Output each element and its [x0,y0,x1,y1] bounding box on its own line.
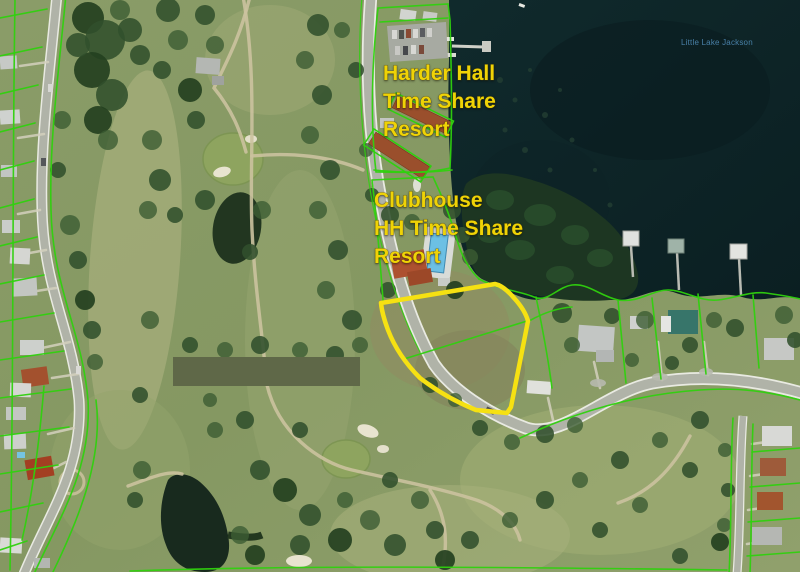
clubhouse-label-line3: Resort [374,245,441,268]
parking-lot [387,22,448,62]
resort-label-line2: Time Share [383,90,496,113]
pool [17,452,25,458]
spur-street [737,416,743,572]
boathouse [623,231,639,246]
aerial-map: Harder Hall Time Share Resort Clubhouse … [0,0,800,572]
clubhouse-label-line2: HH Time Share [374,217,523,240]
pier [452,46,484,47]
resort-label-line3: Resort [383,118,450,141]
dock-head [482,41,491,52]
teal-roof-house [668,310,698,334]
boathouse [730,244,747,259]
clubhouse-label-line1: Clubhouse [374,189,483,212]
aerial-map-screenshot: Harder Hall Time Share Resort Clubhouse … [0,0,800,572]
sand-bunker [377,445,389,453]
resort-label-line1: Harder Hall [383,62,495,85]
redaction-bar [173,357,360,386]
boathouse [668,239,684,253]
sand-bunker [286,555,312,567]
lake-name-label: Little Lake Jackson [681,38,753,47]
